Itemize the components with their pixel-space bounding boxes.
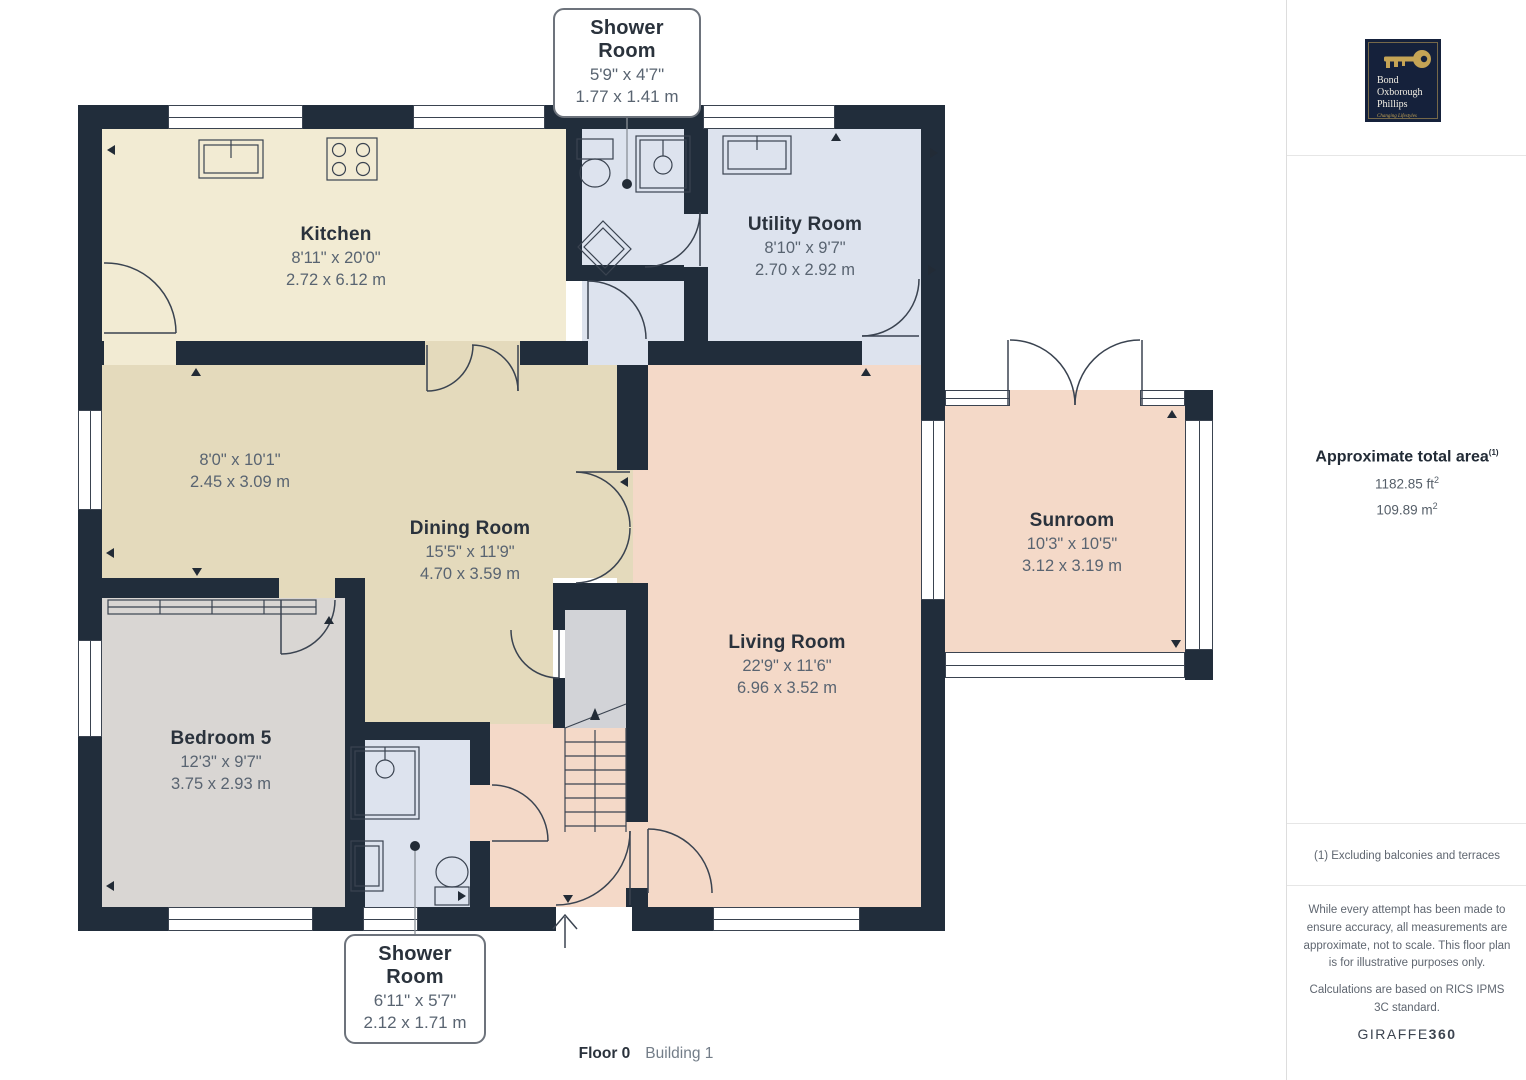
stairs-treads-floor	[565, 728, 626, 840]
giraffe360-brand: GIRAFFE360	[1287, 1026, 1526, 1042]
room-label-utility: Utility Room 8'10" x 9'7" 2.70 x 2.92 m	[748, 214, 862, 280]
stairs-landing-floor	[565, 610, 626, 728]
floor-label: Floor 0	[579, 1045, 631, 1063]
room-name: Sunroom	[1022, 510, 1122, 532]
callout-shower-room-top: Shower Room 5'9" x 4'7" 1.77 x 1.41 m	[553, 8, 701, 118]
window-bedroom-bottom	[168, 907, 313, 931]
room-name: Kitchen	[286, 224, 386, 246]
shower-top-floor	[582, 127, 684, 267]
glazing-sunroom-right	[1185, 420, 1213, 650]
room-dims-metric: 6.96 x 3.52 m	[728, 679, 845, 698]
room-label-dining: Dining Room 15'5" x 11'9" 4.70 x 3.59 m	[410, 518, 530, 584]
window-kitchen-top-left	[168, 105, 303, 129]
sidebar-divider	[1287, 885, 1526, 886]
room-name: Utility Room	[748, 214, 862, 236]
agency-logo-frame: Bond Oxborough Phillips Changing Lifesty…	[1368, 42, 1438, 119]
floor-footer: Floor 0 Building 1	[579, 1045, 714, 1063]
doorway-kitchen-hall	[425, 341, 520, 365]
room-dims-imperial: 10'3" x 10'5"	[1022, 535, 1122, 554]
room-dims-metric: 3.12 x 3.19 m	[1022, 557, 1122, 576]
room-label-bedroom5: Bedroom 5 12'3" x 9'7" 3.75 x 2.93 m	[170, 728, 271, 794]
doorway-utility-living	[862, 341, 921, 365]
dining-floor	[345, 578, 553, 724]
doorway-shower-top	[684, 214, 708, 267]
room-dims-metric: 2.45 x 3.09 m	[190, 473, 290, 492]
sup-2: 2	[1434, 475, 1439, 485]
window-bedroom-left	[78, 640, 102, 737]
room-dims-metric: 4.70 x 3.59 m	[410, 565, 530, 584]
room-label-living: Living Room 22'9" x 11'6" 6.96 x 3.52 m	[728, 632, 845, 698]
total-area-block: Approximate total area(1) 1182.85 ft2 10…	[1287, 448, 1526, 517]
room-dims-metric: 1.77 x 1.41 m	[567, 87, 687, 107]
key-icon	[1378, 47, 1436, 73]
agency-name-line2: Oxborough	[1377, 87, 1437, 99]
room-dims-metric: 2.70 x 2.92 m	[748, 261, 862, 280]
sidebar-divider	[1287, 823, 1526, 824]
wall-stairs-left-a	[553, 583, 565, 630]
room-name: Dining Room	[410, 518, 530, 540]
room-dims-imperial: 15'5" x 11'9"	[410, 543, 530, 562]
window-living-bottom	[713, 907, 860, 931]
window-hall-left	[78, 410, 102, 510]
accuracy-disclaimer: While every attempt has been made to ens…	[1302, 902, 1512, 973]
glazing-sunroom-top-right	[1140, 390, 1185, 406]
wall-shower-utility	[684, 127, 708, 214]
dining-floor-sliver	[617, 470, 633, 583]
doorway-bedroom	[279, 578, 335, 598]
wall-stairs-top	[565, 583, 626, 610]
front-door-opening	[556, 907, 632, 931]
info-sidebar: Bond Oxborough Phillips Changing Lifesty…	[1286, 0, 1526, 1080]
room-dims-metric: 2.12 x 1.71 m	[358, 1013, 472, 1033]
wall-bedroom-top	[102, 578, 279, 598]
room-dims-imperial: 12'3" x 9'7"	[170, 753, 271, 772]
agency-tagline: Changing Lifestyles	[1377, 114, 1437, 119]
doorway-shower-bottom	[470, 785, 490, 841]
standard-note: Calculations are based on RICS IPMS 3C s…	[1302, 982, 1512, 1018]
room-dims-imperial: 8'10" x 9'7"	[748, 239, 862, 258]
sup-2: 2	[1433, 501, 1438, 511]
doorway-hall-lobby	[588, 341, 648, 365]
doorway-kitchen	[104, 341, 176, 365]
shower-bottom-floor	[345, 722, 490, 907]
room-label-hallway: 8'0" x 10'1" 2.45 x 3.09 m	[190, 448, 290, 492]
room-dims-metric: 2.72 x 6.12 m	[286, 271, 386, 290]
agency-name: Bond Oxborough Phillips	[1377, 75, 1437, 110]
room-dims-imperial: 8'0" x 10'1"	[190, 451, 290, 470]
doorway-entrance-living	[626, 822, 648, 888]
window-kitchen-top-right	[413, 105, 545, 129]
total-area-imperial-value: 1182.85 ft	[1375, 477, 1434, 492]
total-area-metric: 109.89 m2	[1287, 501, 1526, 518]
room-dims-imperial: 8'11" x 20'0"	[286, 249, 386, 268]
sidebar-divider	[1287, 155, 1526, 156]
sunroom-post-bottom-right-over	[1185, 650, 1213, 680]
room-name: Bedroom 5	[170, 728, 271, 750]
window-shower-bottom	[363, 907, 418, 931]
total-area-title-text: Approximate total area	[1315, 448, 1488, 465]
building-label: Building 1	[645, 1045, 713, 1063]
agency-name-line1: Bond	[1377, 75, 1437, 87]
wall-bedroom-right	[345, 578, 365, 907]
living-floor	[633, 343, 921, 907]
room-label-kitchen: Kitchen 8'11" x 20'0" 2.72 x 6.12 m	[286, 224, 386, 290]
sunroom-post-top-right	[1185, 390, 1213, 420]
agency-name-line3: Phillips	[1377, 99, 1437, 111]
brand-suffix: 360	[1429, 1026, 1457, 1042]
window-utility-top	[703, 105, 835, 129]
room-dims-metric: 3.75 x 2.93 m	[170, 775, 271, 794]
wall-shower-bottom-top	[345, 722, 490, 740]
brand-name: GIRAFFE	[1357, 1026, 1428, 1042]
room-name: Shower Room	[567, 17, 687, 63]
room-name: Living Room	[728, 632, 845, 654]
glazing-sunroom-top-left	[945, 390, 1010, 406]
room-name: Shower Room	[358, 943, 472, 989]
wall-stairs-left-b	[553, 678, 565, 728]
total-area-imperial: 1182.85 ft2	[1287, 475, 1526, 492]
wall-kitchen-shower	[566, 127, 582, 267]
room-dims-imperial: 5'9" x 4'7"	[567, 65, 687, 85]
total-area-metric-value: 109.89 m	[1376, 502, 1432, 517]
room-label-sunroom: Sunroom 10'3" x 10'5" 3.12 x 3.19 m	[1022, 510, 1122, 576]
room-dims-imperial: 6'11" x 5'7"	[358, 991, 472, 1011]
room-dims-imperial: 22'9" x 11'6"	[728, 657, 845, 676]
floorplan-canvas: Kitchen 8'11" x 20'0" 2.72 x 6.12 m Util…	[0, 0, 1286, 1080]
area-footnote: (1) Excluding balconies and terraces	[1302, 848, 1512, 866]
glazing-sunroom-bottom	[945, 652, 1185, 678]
floorplan-page: { "plan": { "floor_label": "Floor 0", "b…	[0, 0, 1526, 1080]
total-area-title: Approximate total area(1)	[1287, 448, 1526, 466]
glazing-living-sunroom	[921, 420, 945, 600]
hallway-floor	[100, 343, 617, 578]
wall-outer-left	[78, 105, 102, 931]
total-area-footnote-ref: (1)	[1489, 448, 1499, 457]
wall-lobby-utility	[684, 265, 708, 343]
callout-shower-room-bottom: Shower Room 6'11" x 5'7" 2.12 x 1.71 m	[344, 934, 486, 1044]
agency-logo: Bond Oxborough Phillips Changing Lifesty…	[1365, 39, 1441, 122]
